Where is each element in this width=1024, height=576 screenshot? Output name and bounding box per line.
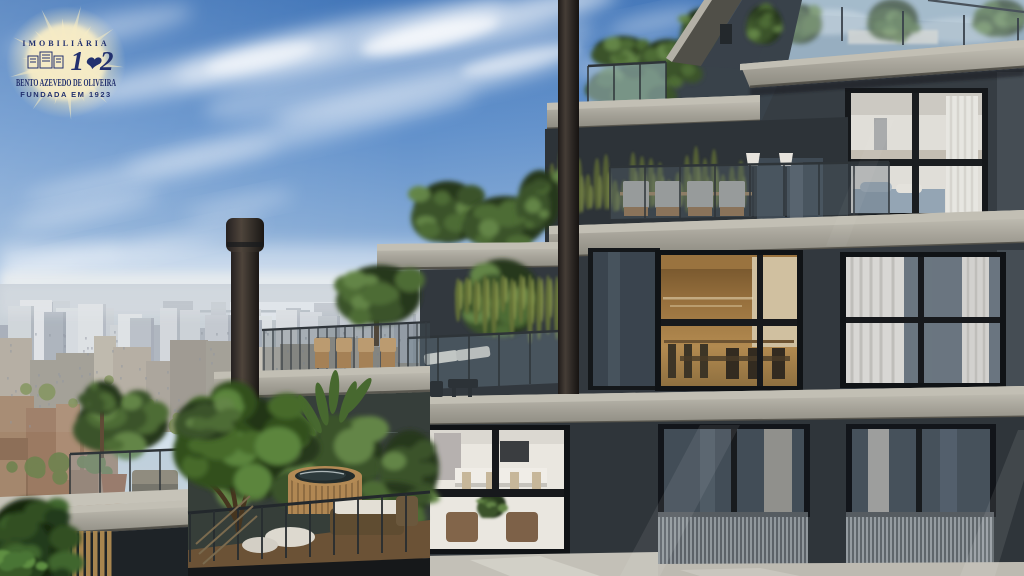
svg-text:IMOBILIÁRIA: IMOBILIÁRIA bbox=[22, 38, 109, 48]
svg-text:FUNDADA EM 1923: FUNDADA EM 1923 bbox=[20, 90, 111, 99]
svg-text:BENTO AZEVEDO DE OLIVEIRA: BENTO AZEVEDO DE OLIVEIRA bbox=[16, 78, 116, 89]
